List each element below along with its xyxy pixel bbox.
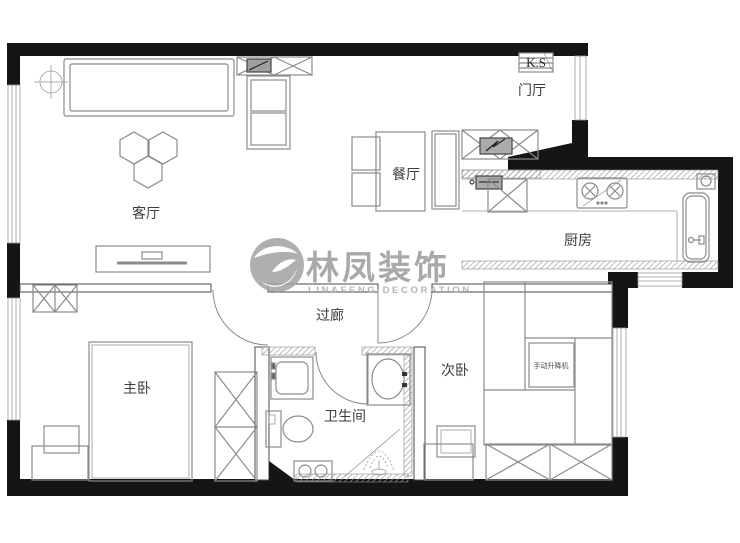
door-arc-bathroom <box>316 352 368 404</box>
shoe-cabinet-x <box>237 57 312 75</box>
floor-drain-corner <box>269 461 295 480</box>
kitchen-cabinet-x <box>488 179 527 212</box>
bedroom2-cabinet-row <box>486 444 612 480</box>
fridge-cabinet <box>432 131 459 209</box>
door-arc-bedroom2 <box>378 289 432 343</box>
sofa <box>64 59 234 116</box>
ks-label: K.S <box>526 55 546 70</box>
room-label-entry: 门厅 <box>518 82 546 98</box>
window-left-upper <box>8 85 20 243</box>
window-bedroom2-east <box>613 328 626 437</box>
bedroom2-bench <box>424 444 473 480</box>
window-kitchen-south <box>638 273 682 286</box>
room-label-second: 次卧 <box>441 362 469 378</box>
room-label-dining: 餐厅 <box>392 166 420 182</box>
toilet-icon <box>266 411 313 447</box>
watermark-logo-icon <box>250 238 304 292</box>
room-label-master: 主卧 <box>123 380 151 396</box>
stove-icon <box>577 178 627 208</box>
shower-icon <box>344 429 400 477</box>
watermark-name: 林凤装饰 <box>306 249 450 286</box>
floor-plan-drawing: K.S <box>0 0 740 543</box>
master-bed <box>89 342 192 481</box>
ceiling-lamp-icon <box>34 65 68 99</box>
bathroom-sink-icon <box>367 354 410 405</box>
room-label-bathroom: 卫生间 <box>324 408 366 424</box>
plant-icon <box>120 132 177 188</box>
floor-plan: K.S <box>0 0 740 543</box>
room-label-corridor: 过廊 <box>316 307 344 323</box>
washing-machine-icon <box>271 357 313 399</box>
watermark-subtitle: LIN&FENG DECORATION <box>308 285 472 296</box>
hall-cabinet <box>247 76 290 149</box>
tv-cabinet <box>96 246 210 272</box>
nightstand <box>32 426 88 480</box>
room-label-living: 客厅 <box>132 205 160 221</box>
window-left-lower <box>8 298 20 420</box>
window-entry-east <box>575 56 586 120</box>
kitchen-sink-icon <box>683 193 709 262</box>
room-label-kitchen: 厨房 <box>564 232 592 248</box>
hatched-walls <box>262 170 718 482</box>
lift-table-label: 手动升降机 <box>534 361 569 370</box>
door-arc-corridor <box>213 290 268 345</box>
watermark: 林凤装饰 LIN&FENG DECORATION <box>250 238 472 296</box>
stool <box>437 426 475 457</box>
wardrobe <box>215 372 257 481</box>
